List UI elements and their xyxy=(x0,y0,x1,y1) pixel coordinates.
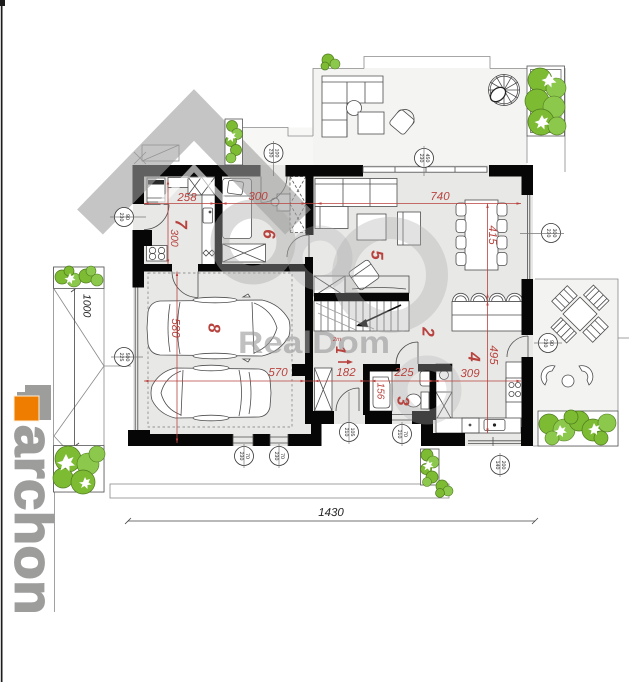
svg-text:740: 740 xyxy=(430,191,450,203)
svg-text:6: 6 xyxy=(260,229,279,239)
svg-text:300: 300 xyxy=(168,229,180,247)
svg-text:70: 70 xyxy=(244,453,250,459)
svg-text:70: 70 xyxy=(402,431,408,437)
svg-text:230: 230 xyxy=(545,229,551,238)
svg-text:300: 300 xyxy=(248,191,268,203)
svg-text:2: 2 xyxy=(419,326,438,337)
svg-text:2m: 2m xyxy=(332,336,341,343)
svg-text:1000: 1000 xyxy=(81,294,93,318)
svg-text:495: 495 xyxy=(487,345,499,365)
svg-text:415: 415 xyxy=(486,225,498,245)
svg-text:230: 230 xyxy=(418,154,424,163)
svg-text:140: 140 xyxy=(494,461,500,470)
svg-text:210: 210 xyxy=(396,430,402,439)
svg-text:5: 5 xyxy=(368,250,387,260)
svg-text:105: 105 xyxy=(349,428,355,437)
svg-text:182: 182 xyxy=(336,367,356,379)
svg-text:230: 230 xyxy=(268,149,274,158)
svg-text:1430: 1430 xyxy=(318,507,344,519)
svg-text:200: 200 xyxy=(500,461,506,470)
svg-text:230: 230 xyxy=(238,452,244,461)
svg-text:100: 100 xyxy=(274,149,280,158)
svg-text:258: 258 xyxy=(176,192,197,204)
svg-text:309: 309 xyxy=(460,368,480,380)
svg-text:580: 580 xyxy=(169,318,181,338)
svg-text:300: 300 xyxy=(551,229,557,238)
svg-text:3: 3 xyxy=(394,396,413,406)
svg-text:1: 1 xyxy=(333,346,349,354)
svg-text:156: 156 xyxy=(375,383,386,400)
svg-text:450: 450 xyxy=(424,154,430,163)
svg-text:225: 225 xyxy=(393,367,414,379)
svg-text:4: 4 xyxy=(465,351,484,362)
svg-text:570: 570 xyxy=(268,367,288,379)
svg-text:RealDom: RealDom xyxy=(238,325,390,360)
svg-text:210: 210 xyxy=(343,428,349,437)
svg-text:230: 230 xyxy=(273,452,279,461)
svg-text:8: 8 xyxy=(205,323,224,333)
svg-text:archon: archon xyxy=(4,425,63,615)
svg-text:70: 70 xyxy=(279,453,285,459)
